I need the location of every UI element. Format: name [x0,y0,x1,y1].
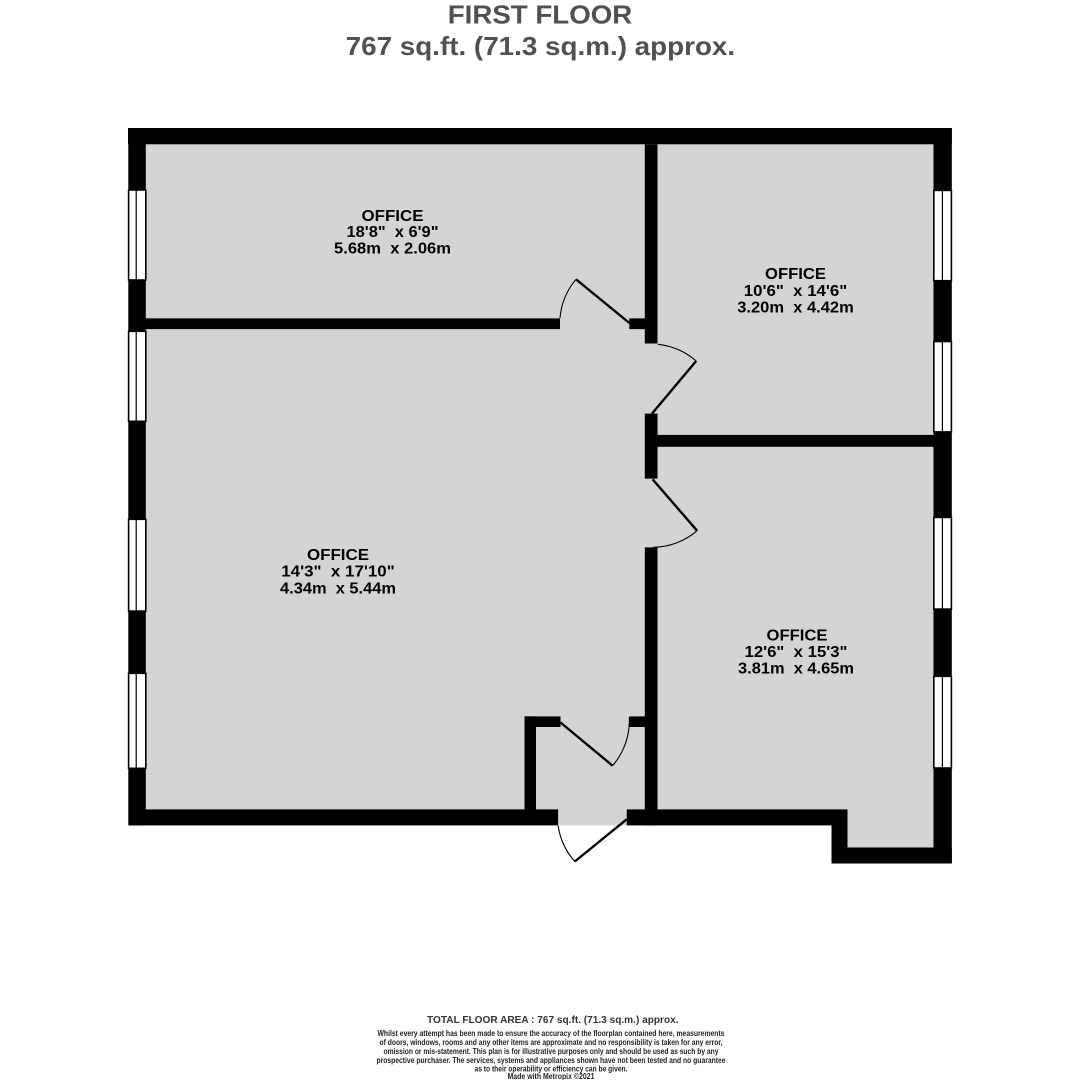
svg-text:12'6" x 15'3": 12'6" x 15'3" [745,644,848,661]
svg-text:OFFICE: OFFICE [767,628,828,645]
svg-text:5.68m x 2.06m: 5.68m x 2.06m [334,240,451,257]
svg-text:10'6" x 14'6": 10'6" x 14'6" [744,283,848,300]
svg-text:OFFICE: OFFICE [307,547,369,564]
svg-text:Made with Metropix ©2021: Made with Metropix ©2021 [508,1071,595,1080]
svg-text:3.81m x 4.65m: 3.81m x 4.65m [738,661,854,678]
svg-text:OFFICE: OFFICE [765,266,826,283]
svg-text:OFFICE: OFFICE [362,208,424,225]
svg-text:FIRST FLOOR: FIRST FLOOR [448,0,633,29]
svg-text:TOTAL FLOOR AREA : 767 sq.ft.: TOTAL FLOOR AREA : 767 sq.ft. (71.3 sq.m… [427,1015,679,1026]
svg-text:18'8" x 6'9": 18'8" x 6'9" [347,224,439,241]
svg-text:14'3" x 17'10": 14'3" x 17'10" [281,564,395,581]
svg-text:4.34m x 5.44m: 4.34m x 5.44m [280,580,396,597]
svg-text:767 sq.ft. (71.3 sq.m.) approx: 767 sq.ft. (71.3 sq.m.) approx. [346,31,736,61]
svg-text:3.20m x 4.42m: 3.20m x 4.42m [737,300,854,317]
